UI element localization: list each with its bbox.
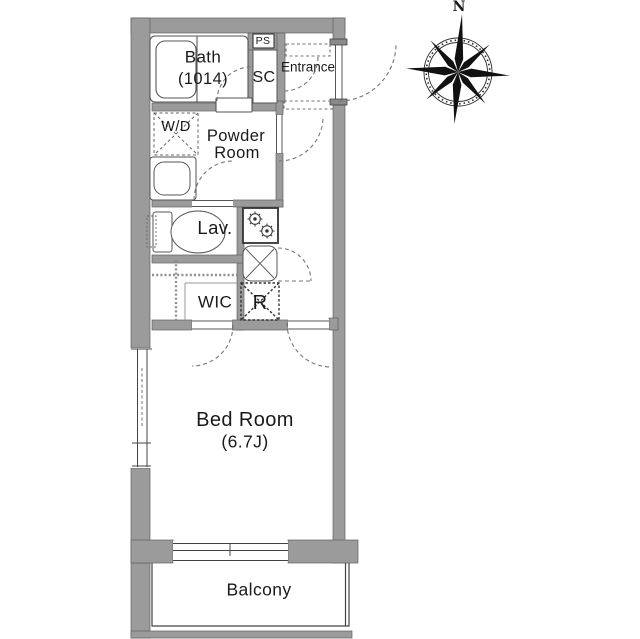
powder-room-label-line1: Powder: [207, 128, 265, 145]
kitchen-sink: [243, 246, 277, 281]
washer-dryer-label: W/D: [161, 120, 190, 135]
compass-rose: [395, 9, 522, 136]
kitchen-door-swing: [278, 248, 311, 281]
entrance-closet-swing-rect: [286, 44, 330, 56]
wic-label: WIC: [198, 294, 232, 311]
bedroom-size-label: (6.7J): [221, 433, 268, 451]
stove: [243, 208, 278, 243]
entrance-door-swing: [339, 44, 396, 101]
wic-door-swing: [192, 325, 233, 366]
refrigerator-label: R: [253, 293, 268, 313]
vanity-sink: [150, 157, 196, 200]
pipe-space-label: PS: [256, 36, 271, 47]
bath-size-label: (1014): [178, 71, 228, 88]
bath-label: Bath: [185, 49, 222, 66]
entrance-label: Entrance: [281, 60, 335, 74]
compass-diagonal-points: [399, 13, 518, 132]
bedroom-side-window: [131, 348, 152, 468]
powder-room-label-line2: Room: [214, 145, 260, 162]
entrance-step-line: [284, 101, 332, 109]
lavatory-door-swing: [194, 161, 233, 200]
powder-room-door-swing: [279, 117, 323, 161]
floor-plan-drawing: [0, 0, 640, 639]
compass-cardinal-points: [402, 11, 513, 128]
lavatory-label: Lav.: [197, 219, 232, 238]
bath-door-leaf: [216, 98, 252, 112]
compass-north-label: N: [453, 0, 466, 14]
bedroom-label: Bed Room: [196, 410, 294, 430]
floor-plan-page: Bath (1014) PS SC Entrance W/D Powder Ro…: [0, 0, 640, 639]
shoe-closet-label: SC: [252, 70, 275, 86]
balcony-label: Balcony: [226, 581, 291, 599]
balcony-sliding-door: [173, 541, 288, 562]
